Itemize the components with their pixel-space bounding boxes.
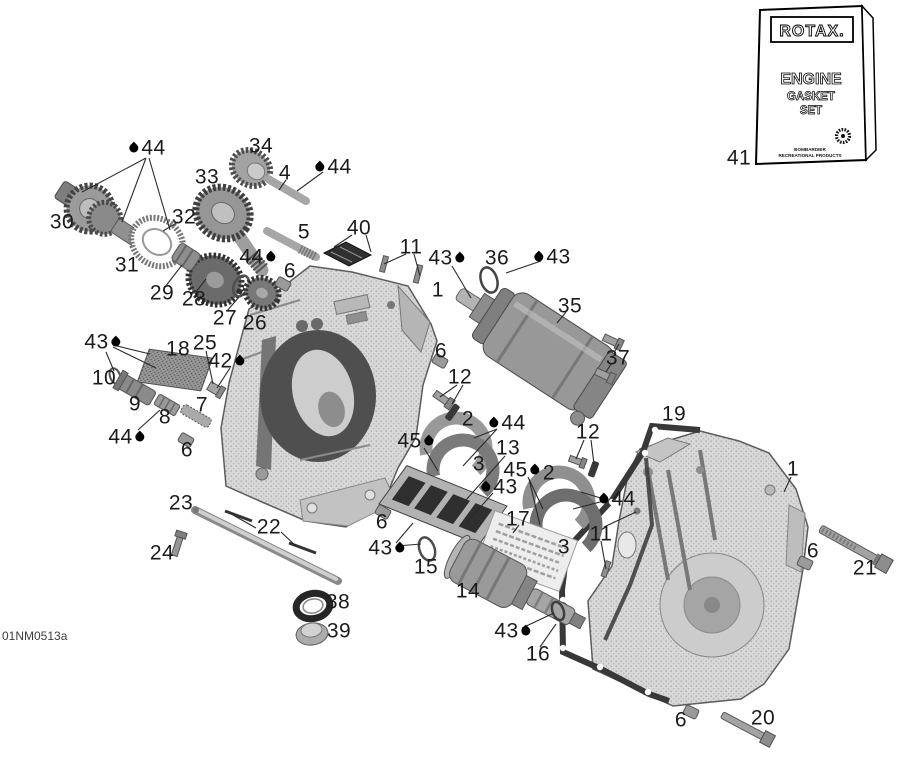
callout-number: 4	[279, 163, 291, 184]
part-callout-19: 19	[662, 404, 686, 425]
oil-drop-icon	[532, 251, 545, 264]
callout-number: 28	[182, 289, 206, 310]
callout-number: 41	[727, 148, 751, 169]
part-callout-23: 23	[169, 493, 193, 514]
part-callout-24: 24	[150, 543, 174, 564]
callout-number: 43	[428, 248, 452, 269]
part-callout-43: 43	[84, 332, 123, 353]
callout-number: 9	[129, 394, 141, 415]
oil-drop-icon	[394, 542, 407, 555]
callout-number: 2	[543, 463, 555, 484]
part-callout-21: 21	[853, 558, 877, 579]
part-callout-9: 9	[129, 394, 141, 415]
callout-number: 12	[448, 367, 472, 388]
callout-layer: 4430333444432312928272654044611433643353…	[0, 0, 900, 775]
part-callout-44: 44	[126, 138, 165, 159]
part-callout-38: 38	[326, 592, 350, 613]
callout-number: 6	[284, 261, 296, 282]
callout-number: 22	[257, 517, 281, 538]
part-callout-11: 11	[590, 524, 613, 545]
part-callout-42: 42	[208, 351, 247, 372]
part-callout-10: 10	[92, 368, 116, 389]
part-callout-6: 6	[807, 541, 819, 562]
oil-drop-icon	[313, 161, 326, 174]
part-callout-16: 16	[526, 644, 550, 665]
callout-number: 2	[462, 409, 474, 430]
callout-number: 36	[485, 248, 509, 269]
part-callout-6: 6	[435, 341, 447, 362]
callout-number: 43	[368, 538, 392, 559]
part-callout-6: 6	[181, 440, 193, 461]
callout-number: 30	[50, 212, 74, 233]
callout-number: 43	[493, 477, 517, 498]
oil-drop-icon	[110, 336, 123, 349]
part-callout-44: 44	[596, 489, 635, 510]
callout-number: 11	[400, 237, 423, 258]
part-callout-44: 44	[239, 247, 278, 268]
part-callout-2: 2	[462, 409, 474, 430]
oil-drop-icon	[479, 481, 492, 494]
part-callout-26: 26	[243, 313, 267, 334]
callout-number: 6	[376, 512, 388, 533]
callout-number: 43	[84, 332, 108, 353]
callout-number: 6	[675, 710, 687, 731]
part-callout-43: 43	[368, 538, 407, 559]
callout-number: 3	[558, 537, 570, 558]
part-callout-22: 22	[257, 517, 281, 538]
callout-number: 42	[208, 351, 232, 372]
part-callout-20: 20	[751, 708, 775, 729]
part-callout-35: 35	[558, 296, 582, 317]
part-callout-36: 36	[485, 248, 509, 269]
part-callout-45: 45	[397, 431, 436, 452]
callout-number: 29	[150, 283, 174, 304]
part-callout-5: 5	[298, 222, 310, 243]
callout-number: 8	[159, 407, 171, 428]
oil-drop-icon	[265, 251, 278, 264]
callout-number: 1	[432, 280, 444, 301]
part-callout-33: 33	[195, 167, 219, 188]
part-callout-12: 12	[448, 367, 472, 388]
callout-number: 21	[853, 558, 877, 579]
part-callout-30: 30	[50, 212, 74, 233]
callout-number: 15	[414, 557, 438, 578]
part-callout-6: 6	[376, 512, 388, 533]
part-callout-29: 29	[150, 283, 174, 304]
callout-number: 6	[435, 341, 447, 362]
part-callout-15: 15	[414, 557, 438, 578]
callout-number: 3	[473, 454, 485, 475]
callout-number: 43	[546, 247, 570, 268]
callout-number: 44	[239, 247, 263, 268]
callout-number: 13	[496, 438, 520, 459]
part-callout-43: 43	[428, 248, 467, 269]
callout-number: 44	[611, 489, 635, 510]
part-callout-13: 13	[496, 438, 520, 459]
callout-number: 20	[751, 708, 775, 729]
part-callout-41: 41	[727, 148, 751, 169]
part-callout-43: 43	[494, 621, 533, 642]
part-callout-40: 40	[347, 218, 371, 239]
oil-drop-icon	[127, 142, 140, 155]
callout-number: 10	[92, 368, 116, 389]
part-callout-44: 44	[312, 157, 351, 178]
part-callout-12: 12	[576, 422, 600, 443]
callout-number: 31	[115, 255, 139, 276]
callout-number: 44	[327, 157, 351, 178]
callout-number: 14	[456, 581, 480, 602]
oil-drop-icon	[529, 464, 542, 477]
part-callout-17: 17	[506, 509, 530, 530]
part-callout-28: 28	[182, 289, 206, 310]
part-callout-14: 14	[456, 581, 480, 602]
callout-number: 34	[249, 136, 273, 157]
oil-drop-icon	[423, 435, 436, 448]
part-callout-3: 3	[473, 454, 485, 475]
part-callout-34: 34	[249, 136, 273, 157]
callout-number: 24	[150, 543, 174, 564]
callout-number: 33	[195, 167, 219, 188]
callout-number: 44	[141, 138, 165, 159]
part-callout-27: 27	[213, 308, 237, 329]
part-callout-6: 6	[675, 710, 687, 731]
callout-number: 40	[347, 218, 371, 239]
callout-number: 5	[298, 222, 310, 243]
callout-number: 19	[662, 404, 686, 425]
oil-drop-icon	[234, 355, 247, 368]
part-callout-44: 44	[486, 413, 525, 434]
part-callout-44: 44	[108, 427, 147, 448]
part-callout-1: 1	[432, 280, 444, 301]
part-callout-3: 3	[558, 537, 570, 558]
callout-number: 26	[243, 313, 267, 334]
callout-number: 23	[169, 493, 193, 514]
callout-number: 45	[397, 431, 421, 452]
callout-number: 12	[576, 422, 600, 443]
part-callout-39: 39	[327, 621, 351, 642]
callout-number: 35	[558, 296, 582, 317]
part-callout-1: 1	[787, 459, 799, 480]
part-callout-37: 37	[606, 348, 630, 369]
part-callout-2: 2	[543, 463, 555, 484]
part-callout-11: 11	[400, 237, 423, 258]
callout-number: 16	[526, 644, 550, 665]
part-callout-4: 4	[279, 163, 291, 184]
oil-drop-icon	[597, 493, 610, 506]
part-callout-6: 6	[284, 261, 296, 282]
part-callout-43: 43	[531, 247, 570, 268]
callout-number: 37	[606, 348, 630, 369]
oil-drop-icon	[520, 625, 533, 638]
part-callout-31: 31	[115, 255, 139, 276]
callout-number: 44	[501, 413, 525, 434]
callout-number: 43	[494, 621, 518, 642]
callout-number: 38	[326, 592, 350, 613]
callout-number: 27	[213, 308, 237, 329]
callout-number: 17	[506, 509, 530, 530]
callout-number: 11	[590, 524, 613, 545]
callout-number: 1	[787, 459, 799, 480]
part-callout-18: 18	[166, 339, 190, 360]
part-callout-7: 7	[196, 395, 208, 416]
callout-number: 39	[327, 621, 351, 642]
callout-number: 18	[166, 339, 190, 360]
part-callout-8: 8	[159, 407, 171, 428]
callout-number: 6	[181, 440, 193, 461]
callout-number: 6	[807, 541, 819, 562]
exploded-parts-diagram: 4430333444432312928272654044611433643353…	[0, 0, 900, 775]
oil-drop-icon	[487, 417, 500, 430]
oil-drop-icon	[454, 252, 467, 265]
oil-drop-icon	[134, 431, 147, 444]
callout-number: 7	[196, 395, 208, 416]
callout-number: 44	[108, 427, 132, 448]
part-callout-32: 32	[172, 207, 196, 228]
part-callout-43: 43	[478, 477, 517, 498]
callout-number: 32	[172, 207, 196, 228]
